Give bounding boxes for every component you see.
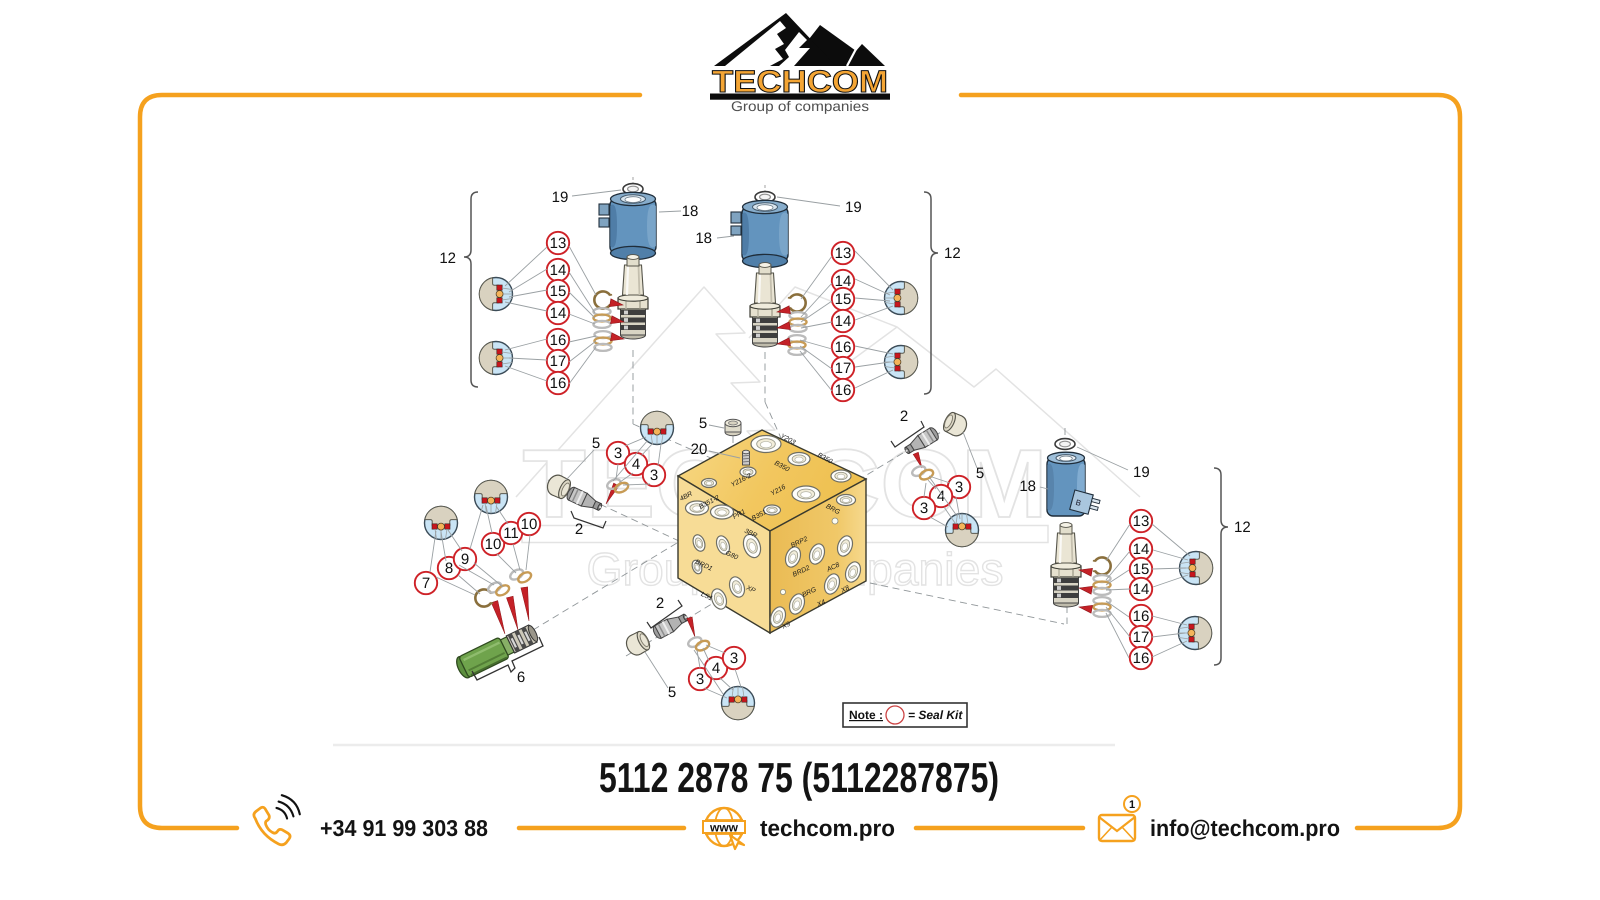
svg-text:18: 18 bbox=[695, 230, 712, 247]
svg-text:Group of companies: Group of companies bbox=[731, 98, 869, 114]
svg-text:12: 12 bbox=[439, 250, 456, 267]
svg-text:techcom.pro: techcom.pro bbox=[760, 815, 895, 841]
svg-text:2: 2 bbox=[575, 521, 583, 538]
svg-text:11: 11 bbox=[503, 525, 519, 542]
svg-text:3: 3 bbox=[650, 467, 658, 484]
svg-text:15: 15 bbox=[1133, 561, 1150, 578]
svg-text:10: 10 bbox=[485, 536, 502, 553]
svg-text:Note :: Note : bbox=[849, 708, 883, 722]
svg-text:8: 8 bbox=[445, 560, 453, 577]
svg-text:3: 3 bbox=[955, 479, 963, 496]
svg-text:16: 16 bbox=[835, 382, 852, 399]
svg-text:15: 15 bbox=[835, 291, 852, 308]
svg-text:14: 14 bbox=[1133, 541, 1150, 558]
svg-text:info@techcom.pro: info@techcom.pro bbox=[1150, 815, 1340, 841]
svg-text:20: 20 bbox=[691, 441, 708, 458]
svg-text:3: 3 bbox=[730, 650, 738, 667]
svg-text:3: 3 bbox=[696, 671, 704, 688]
svg-text:12: 12 bbox=[1234, 519, 1251, 536]
svg-text:3: 3 bbox=[920, 500, 928, 517]
svg-text:18: 18 bbox=[682, 203, 699, 220]
svg-text:19: 19 bbox=[1133, 464, 1150, 481]
svg-text:13: 13 bbox=[1133, 513, 1150, 530]
svg-text:18: 18 bbox=[1019, 478, 1036, 495]
svg-text:5: 5 bbox=[668, 684, 676, 701]
svg-text:5112 2878 75 (5112287875): 5112 2878 75 (5112287875) bbox=[599, 754, 999, 801]
svg-text:19: 19 bbox=[845, 199, 862, 216]
svg-text:+34 91 99 303 88: +34 91 99 303 88 bbox=[320, 815, 488, 841]
svg-text:4: 4 bbox=[712, 660, 720, 677]
svg-text:2: 2 bbox=[900, 408, 908, 425]
svg-text:2: 2 bbox=[656, 595, 664, 612]
svg-text:TECHCOM: TECHCOM bbox=[712, 64, 888, 99]
svg-text:16: 16 bbox=[550, 375, 567, 392]
svg-text:3: 3 bbox=[614, 445, 622, 462]
svg-text:4: 4 bbox=[937, 488, 945, 505]
svg-text:17: 17 bbox=[835, 360, 852, 377]
svg-text:16: 16 bbox=[835, 339, 852, 356]
svg-text:14: 14 bbox=[550, 305, 567, 322]
svg-text:5: 5 bbox=[592, 435, 600, 452]
svg-text:www: www bbox=[709, 821, 739, 835]
svg-text:17: 17 bbox=[550, 353, 567, 370]
svg-text:16: 16 bbox=[1133, 650, 1150, 667]
svg-text:16: 16 bbox=[1133, 608, 1150, 625]
svg-text:1: 1 bbox=[1129, 799, 1135, 811]
svg-text:9: 9 bbox=[461, 551, 469, 568]
svg-text:12: 12 bbox=[944, 245, 961, 262]
svg-text:10: 10 bbox=[521, 516, 538, 533]
svg-text:5: 5 bbox=[699, 415, 707, 432]
svg-text:14: 14 bbox=[835, 313, 852, 330]
svg-text:19: 19 bbox=[552, 189, 569, 206]
svg-text:17: 17 bbox=[1133, 629, 1150, 646]
svg-text:= Seal Kit: = Seal Kit bbox=[908, 708, 963, 722]
svg-text:14: 14 bbox=[550, 262, 567, 279]
svg-text:13: 13 bbox=[550, 235, 567, 252]
svg-text:16: 16 bbox=[550, 332, 567, 349]
svg-text:14: 14 bbox=[1133, 581, 1150, 598]
svg-text:15: 15 bbox=[550, 283, 567, 300]
svg-text:6: 6 bbox=[517, 669, 525, 686]
svg-text:4: 4 bbox=[632, 456, 640, 473]
svg-text:7: 7 bbox=[422, 575, 430, 592]
svg-text:13: 13 bbox=[835, 245, 852, 262]
